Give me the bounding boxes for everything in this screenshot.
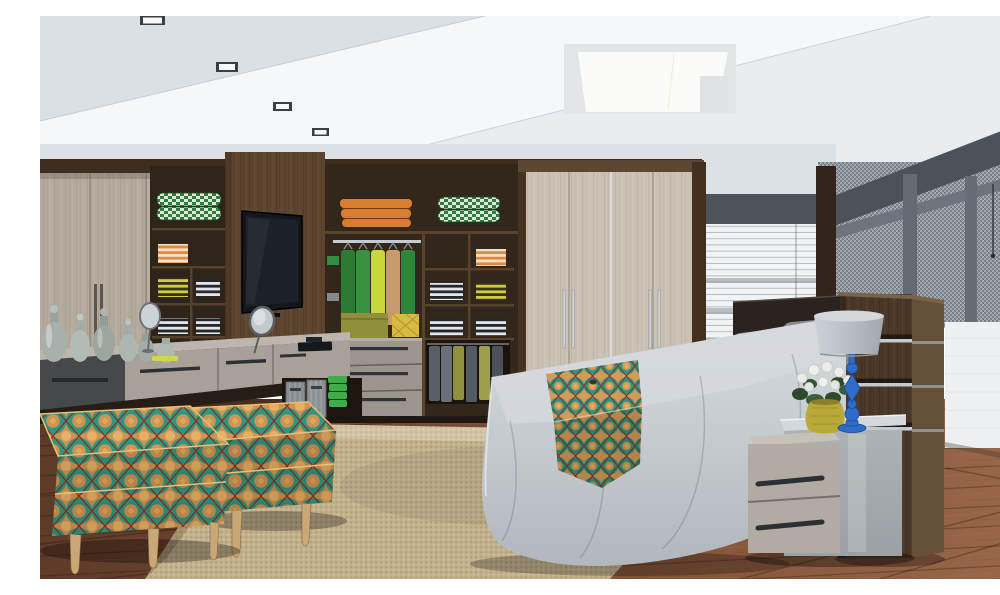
- drawer-handle: [52, 378, 108, 382]
- basket-handle: [290, 388, 301, 391]
- folded-clothes-stripe: [430, 283, 463, 300]
- orange-towel-stack: [340, 199, 412, 227]
- shelf: [152, 266, 226, 269]
- shirt: [371, 250, 385, 322]
- patterned-throw: [546, 360, 642, 488]
- downlight: [312, 128, 329, 136]
- white-partition: [945, 310, 1000, 466]
- tv-panel: [225, 152, 325, 358]
- folded-clothes-stripe: [196, 318, 220, 334]
- radio-device-top: [306, 337, 322, 342]
- shelf: [152, 303, 226, 306]
- ceiling-light-panel: [564, 44, 736, 114]
- folded-towels-green: [438, 197, 500, 209]
- lamp-shade: [814, 316, 884, 354]
- drawer-handle: [346, 372, 408, 375]
- divider: [422, 231, 425, 416]
- folded-clothes-stripe: [476, 319, 506, 336]
- divider: [468, 234, 471, 338]
- folded-clothes-orange: [158, 244, 188, 263]
- panel-side: [912, 297, 944, 558]
- cord-tassel: [991, 254, 995, 258]
- frame-top: [518, 160, 704, 172]
- shirt: [341, 250, 355, 324]
- mesh-post: [965, 176, 977, 324]
- folded-clothes-yellow: [158, 278, 188, 297]
- panel-edge-shade: [225, 152, 231, 358]
- roller-valance: [706, 194, 818, 224]
- shirt: [401, 250, 415, 323]
- folded-clothes-stripe: [430, 319, 463, 336]
- blind-band: [706, 278, 818, 283]
- basket-handle: [311, 386, 322, 389]
- yellow-tray: [152, 356, 178, 361]
- ottoman-shadow: [203, 511, 347, 531]
- shelving-unit-left: [150, 166, 228, 361]
- vase-rim: [810, 399, 840, 405]
- folded-item-gray: [327, 293, 339, 301]
- folded-clothes-orange: [476, 249, 506, 266]
- lamp-shade-top: [814, 311, 884, 322]
- bedroom-render: Photorealistic 3D rendering of a bedroom…: [40, 16, 1000, 579]
- downlight: [140, 16, 165, 25]
- folded-clothes-stripe: [158, 318, 188, 334]
- folded-towels-green: [157, 207, 221, 220]
- partition-panel: [945, 322, 1000, 448]
- shirt: [386, 250, 400, 325]
- light-louver: [700, 76, 728, 112]
- downlight: [273, 102, 292, 111]
- nightstand: [745, 415, 915, 567]
- folded-towels-green: [157, 193, 221, 206]
- folded-towels-green: [438, 210, 500, 222]
- radio-device: [298, 341, 332, 351]
- gloss-highlight: [848, 434, 866, 552]
- drawer-handle: [346, 347, 408, 350]
- shelf: [325, 231, 518, 234]
- throw-detail: [590, 380, 597, 385]
- folded-item-green: [327, 256, 339, 265]
- storage-boxes: [341, 313, 419, 338]
- render-canvas: [40, 16, 1000, 579]
- folded-clothes-yellow: [476, 283, 506, 300]
- door-top-shadow: [40, 173, 150, 179]
- shelf: [152, 228, 226, 231]
- folded-clothes-stripe: [196, 280, 220, 297]
- downlight: [216, 62, 238, 72]
